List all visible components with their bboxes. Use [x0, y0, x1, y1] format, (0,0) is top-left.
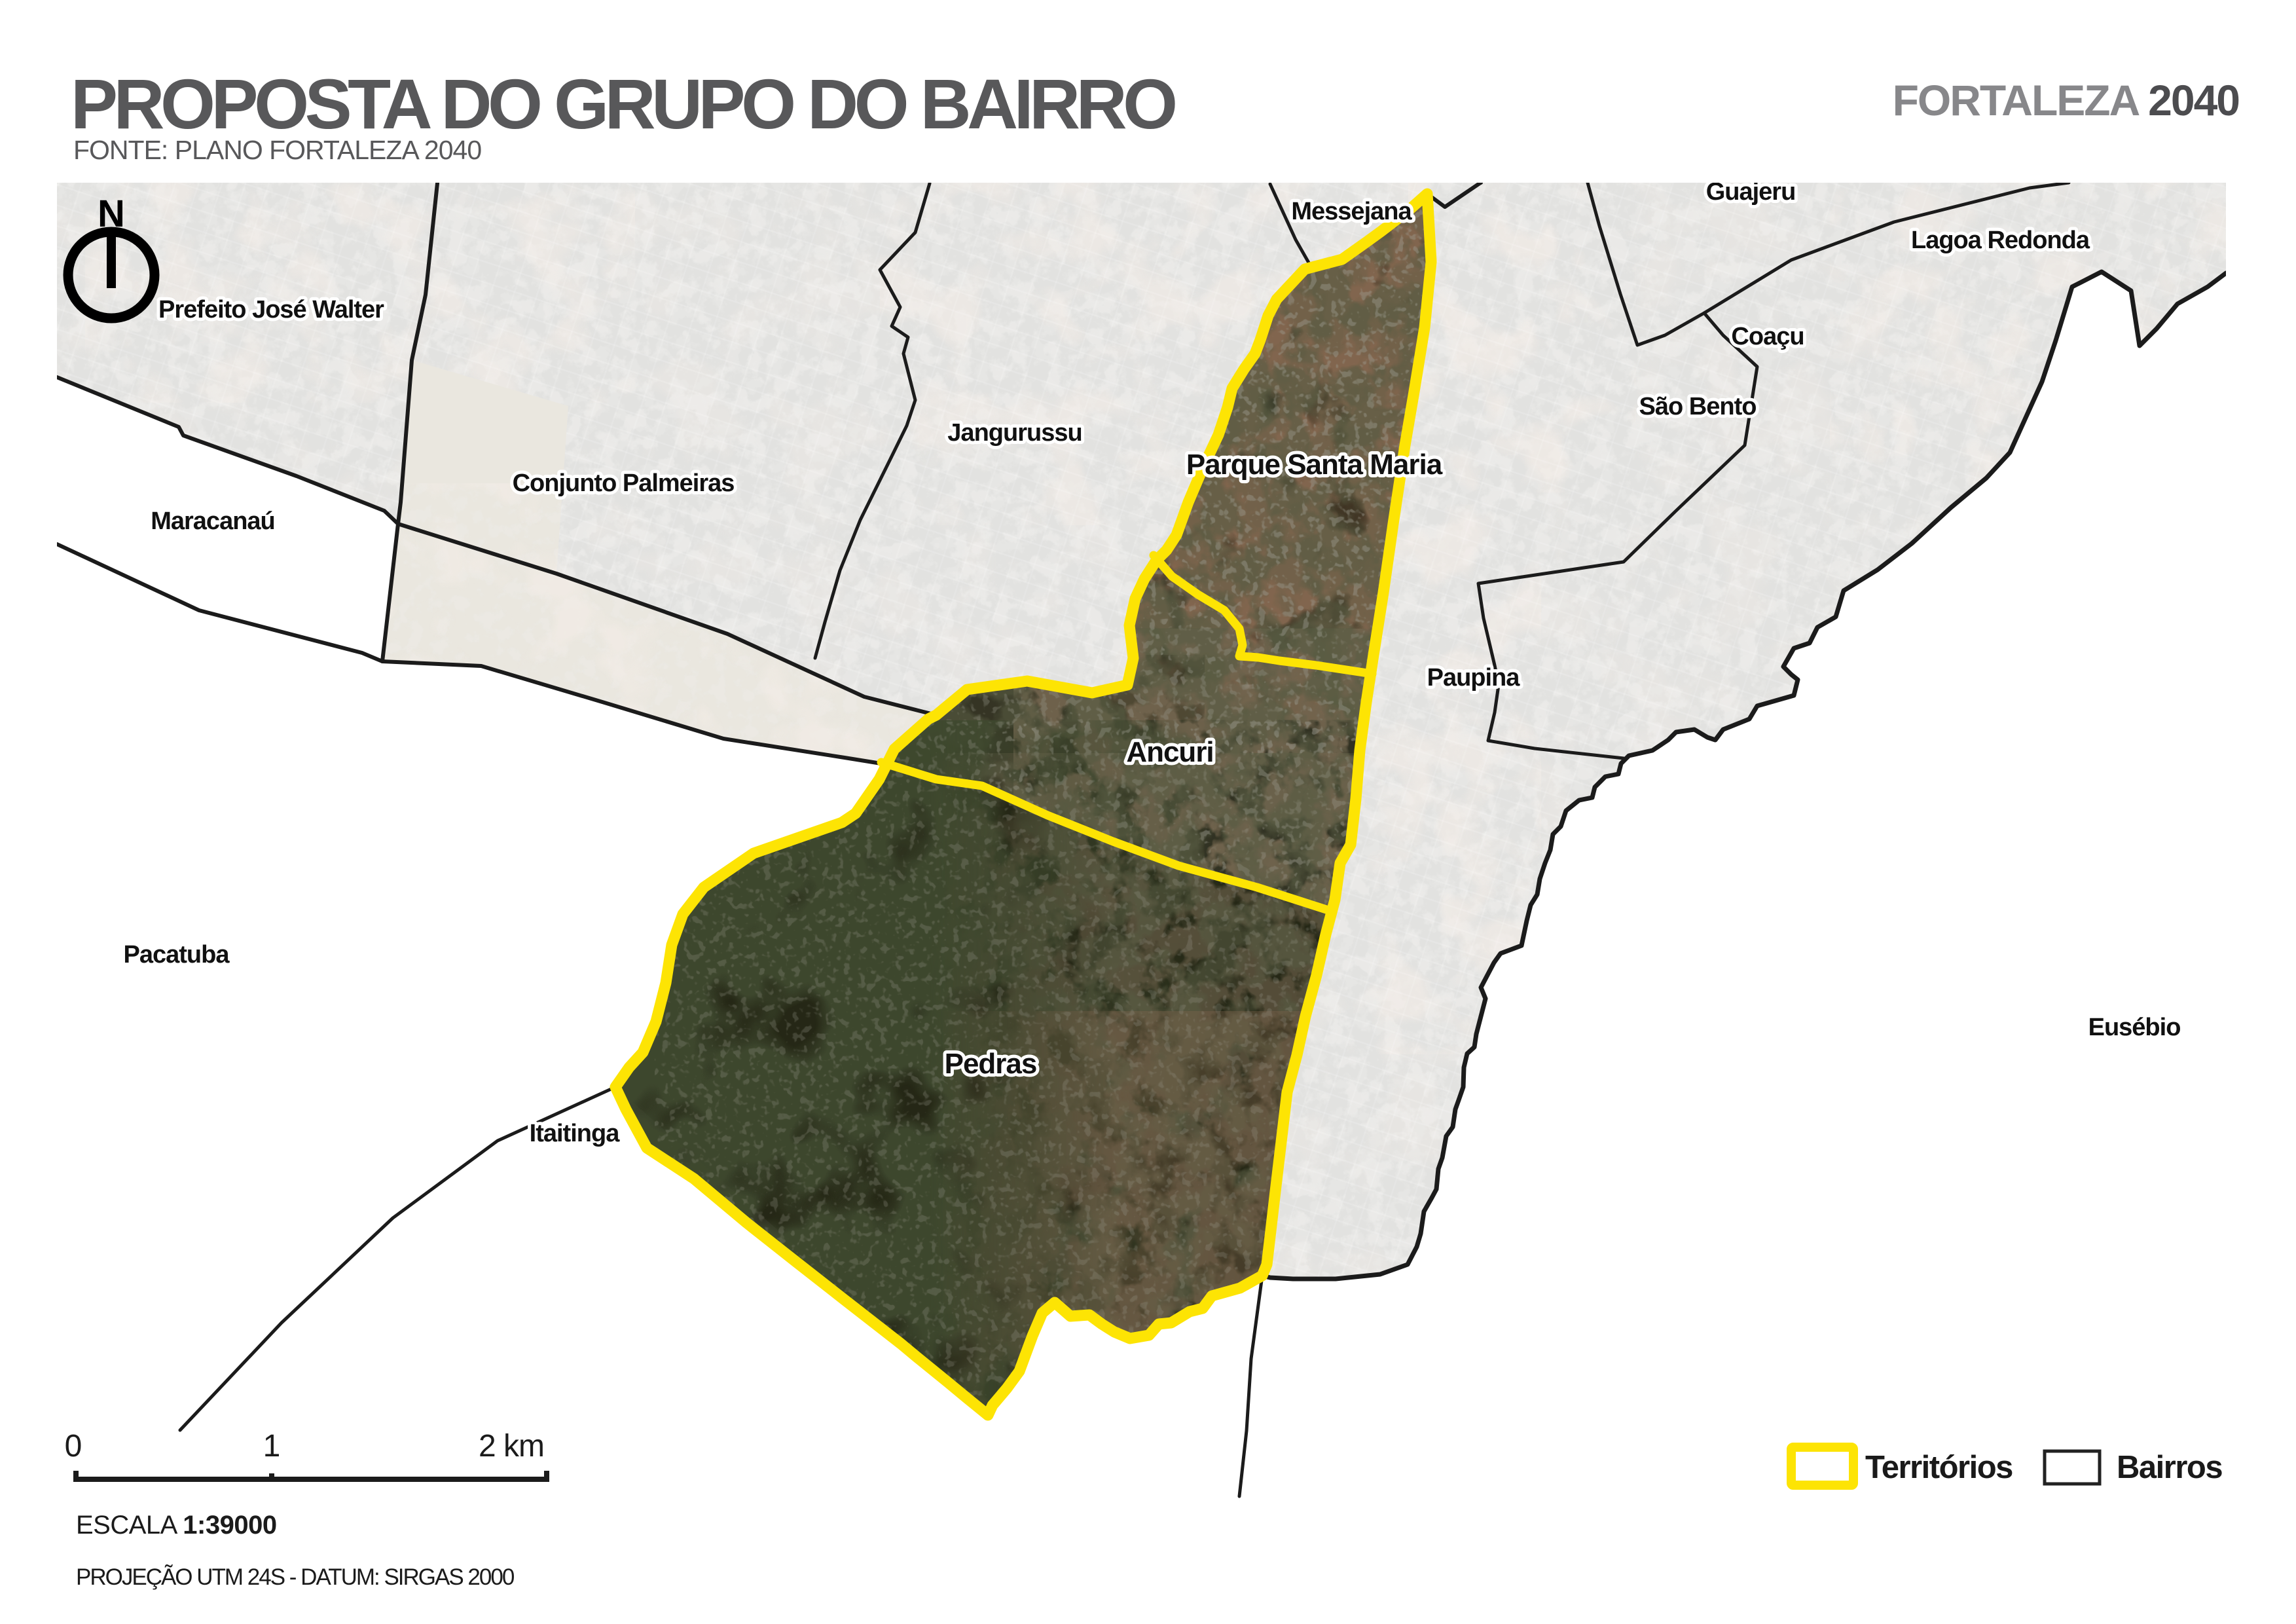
svg-text:Ancuri: Ancuri [1126, 736, 1213, 768]
svg-text:Jangurussu: Jangurussu [947, 419, 1082, 447]
svg-text:São Bento: São Bento [1639, 393, 1757, 420]
svg-text:Territórios: Territórios [1865, 1450, 2013, 1485]
svg-text:Paupina: Paupina [1427, 664, 1521, 692]
svg-text:Pacatuba: Pacatuba [124, 941, 230, 969]
svg-text:Messejana: Messejana [1291, 198, 1412, 225]
svg-text:PROPOSTA DO GRUPO DO BAIRRO: PROPOSTA DO GRUPO DO BAIRRO [71, 64, 1175, 143]
svg-text:ESCALA 1:39000: ESCALA 1:39000 [76, 1511, 277, 1540]
svg-text:FORTALEZA 2040: FORTALEZA 2040 [1893, 76, 2239, 124]
svg-text:Itaitinga: Itaitinga [530, 1120, 621, 1147]
svg-text:Lagoa Redonda: Lagoa Redonda [1911, 227, 2090, 254]
svg-text:N: N [98, 193, 125, 235]
svg-text:0: 0 [65, 1429, 82, 1464]
svg-text:Parque Santa Maria: Parque Santa Maria [1186, 449, 1443, 481]
svg-text:Prefeito José Walter: Prefeito José Walter [158, 296, 384, 323]
svg-text:PROJEÇÃO UTM 24S - DATUM: SIRG: PROJEÇÃO UTM 24S - DATUM: SIRGAS 2000 [76, 1564, 515, 1590]
svg-text:1: 1 [263, 1429, 281, 1464]
svg-text:Eusébio: Eusébio [2088, 1014, 2181, 1041]
svg-text:2 km: 2 km [479, 1429, 544, 1464]
svg-text:Maracanaú: Maracanaú [151, 507, 275, 535]
svg-text:Pedras: Pedras [945, 1048, 1037, 1080]
svg-text:Conjunto Palmeiras: Conjunto Palmeiras [513, 470, 735, 497]
svg-text:Coaçu: Coaçu [1731, 323, 1804, 350]
svg-text:FONTE: PLANO FORTALEZA 2040: FONTE: PLANO FORTALEZA 2040 [73, 135, 481, 165]
svg-text:Bairros: Bairros [2117, 1450, 2222, 1485]
